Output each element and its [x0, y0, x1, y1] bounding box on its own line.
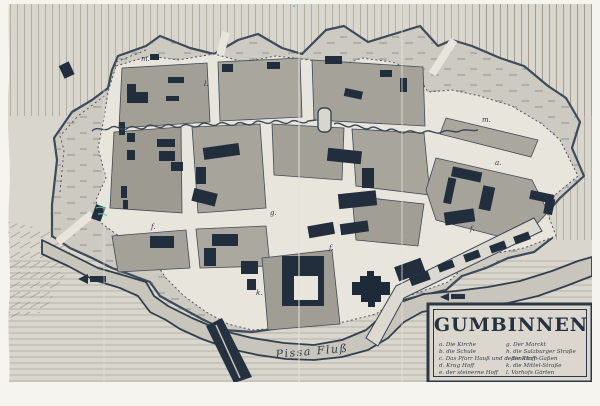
building: [150, 236, 174, 248]
margin-top: [0, 0, 600, 4]
plan-marker: l.: [204, 80, 208, 88]
building: [157, 139, 175, 147]
building: [168, 77, 184, 83]
building: [212, 234, 238, 246]
map-canvas: m. l. m. a. f. g. f. f. k. Pissa Fluß GU…: [0, 0, 600, 406]
title-cartouche: GUMBINNEN a. Die Kirche b. die Schule c.…: [428, 304, 592, 382]
building: [222, 64, 233, 72]
plan-marker: m.: [141, 55, 150, 63]
arrow-bar: [451, 294, 465, 299]
building: [362, 168, 374, 188]
plan-marker: a.: [495, 159, 501, 167]
plan-marker: k.: [256, 289, 262, 297]
legend-entry: d. Krug Hoff: [439, 363, 475, 369]
building: [127, 133, 135, 142]
legend-entry: a. Die Kirche: [439, 342, 477, 348]
building: [267, 62, 280, 69]
building: [204, 248, 216, 266]
legend-entry: i. die Kirch-Gaßen: [506, 356, 558, 362]
crayon-mark: [293, 5, 295, 7]
plan-marker: m.: [482, 116, 491, 124]
building: [159, 151, 175, 161]
legend-entry: e. der steinerne Hoff: [439, 370, 499, 376]
margin-bottom: [0, 382, 600, 406]
legend-entry: l. Vorhofs Gärten: [506, 370, 555, 376]
legend-entry: b. die Schule: [439, 349, 477, 355]
margin-right: [592, 0, 600, 406]
plan-marker: f.: [328, 244, 334, 252]
building: [127, 150, 135, 160]
plan-marker: g.: [270, 209, 277, 217]
photograph-of-town-plan: m. l. m. a. f. g. f. f. k. Pissa Fluß GU…: [0, 0, 600, 406]
building: [166, 96, 179, 101]
building: [380, 70, 392, 77]
mill-pond: [318, 108, 331, 132]
building: [325, 56, 342, 64]
building: [196, 167, 206, 184]
building: [121, 186, 127, 198]
plan-marker: f.: [469, 225, 475, 233]
building: [247, 279, 256, 290]
building: [150, 54, 159, 60]
crayon-mark: [405, 235, 407, 237]
plan-marker: f.: [150, 223, 156, 231]
legend-entry: g. Der Marckt: [506, 342, 547, 348]
building: [123, 200, 128, 209]
building: [171, 162, 183, 171]
building: [241, 261, 258, 274]
courtyard: [294, 276, 318, 300]
map-title: GUMBINNEN: [434, 314, 588, 336]
legend-entry: k. die Mittel-Straße: [506, 363, 562, 369]
legend-entry: h. die Salzburger Straße: [506, 349, 577, 355]
